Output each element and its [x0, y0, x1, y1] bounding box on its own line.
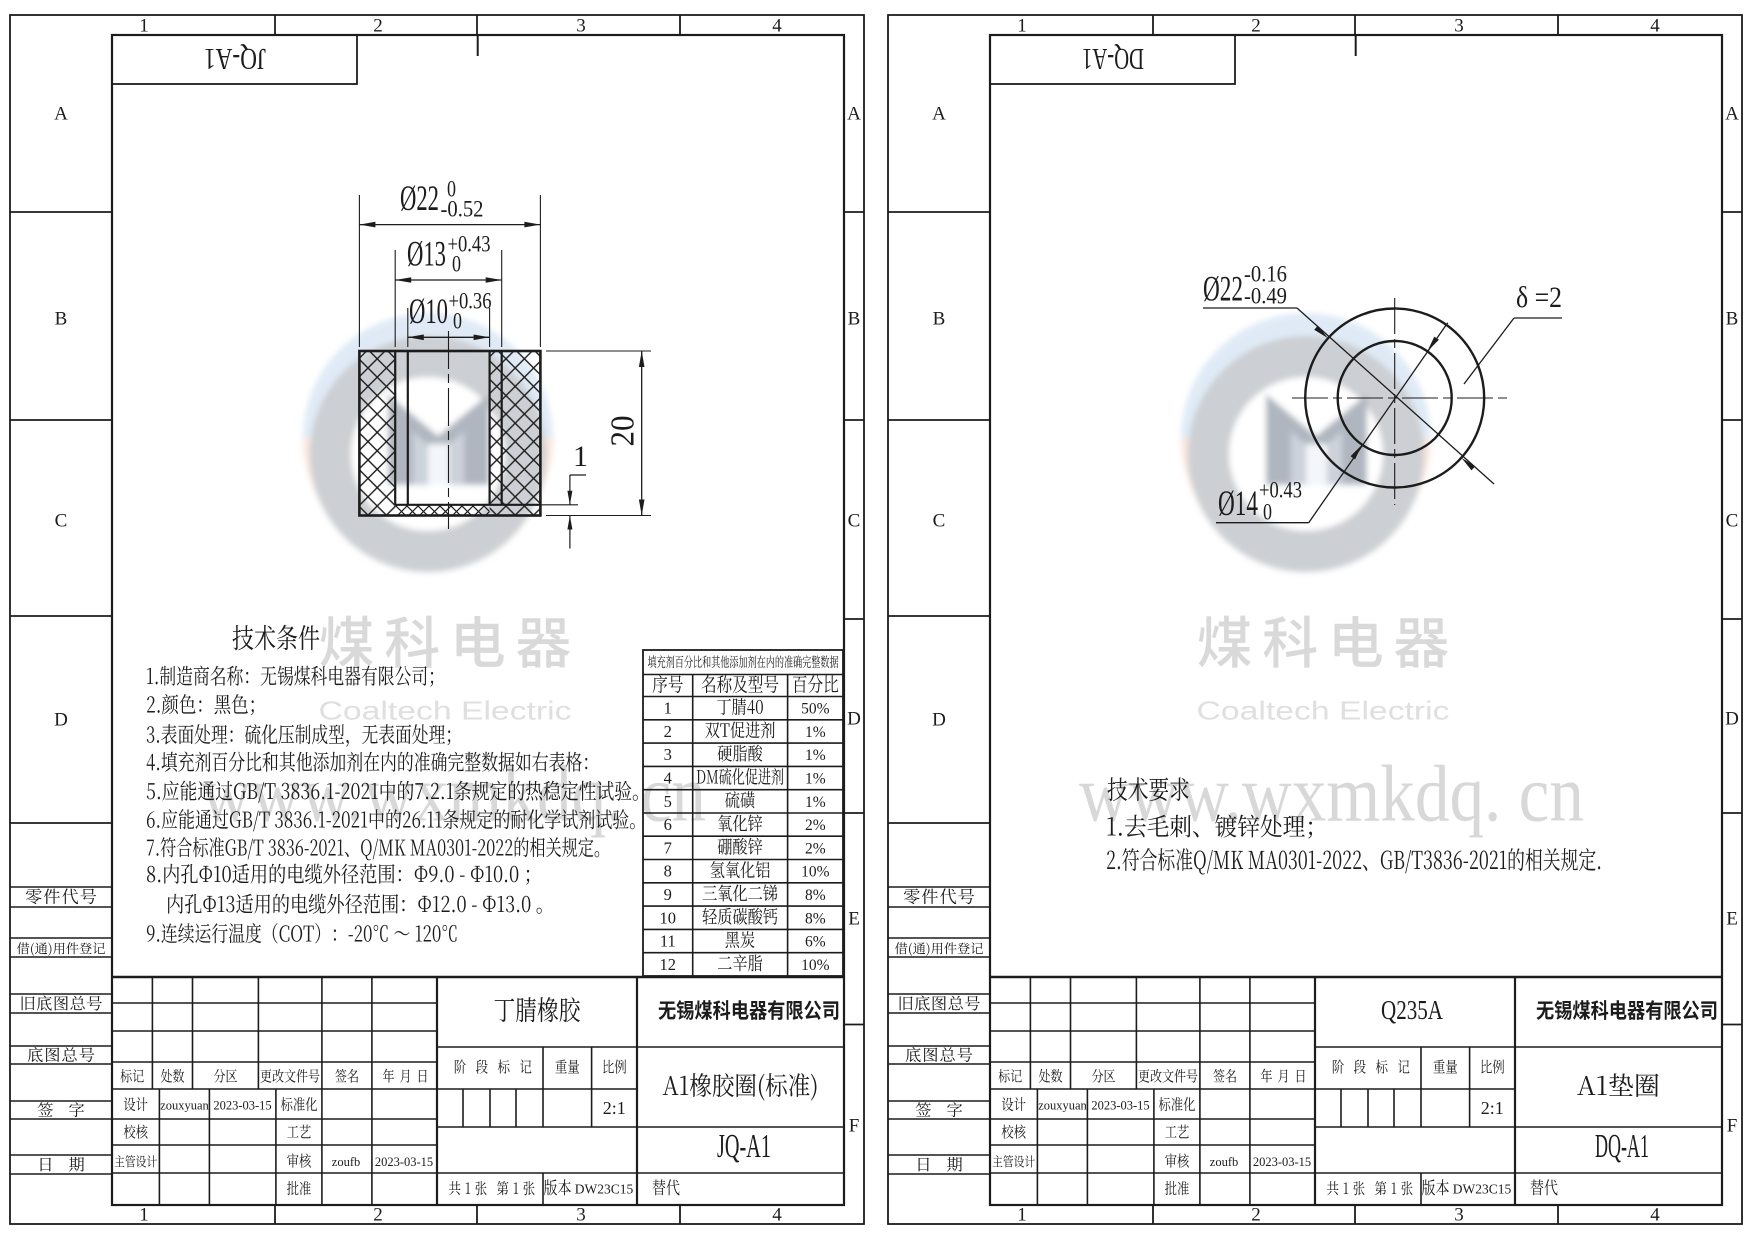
svg-text:JQ-A1: JQ-A1 [204, 42, 266, 77]
svg-text:DW23C15: DW23C15 [1453, 1182, 1512, 1197]
svg-text:Coaltech Electric: Coaltech Electric [319, 696, 572, 726]
svg-text:1: 1 [139, 16, 149, 37]
svg-text:2023-03-15: 2023-03-15 [375, 1155, 433, 1169]
svg-text:A: A [932, 104, 946, 125]
svg-text:20: 20 [605, 416, 642, 447]
svg-text:3: 3 [576, 16, 586, 37]
svg-text:4: 4 [772, 1205, 782, 1226]
svg-text:0: 0 [1263, 500, 1272, 525]
svg-text:3: 3 [1454, 16, 1464, 37]
svg-text:4: 4 [772, 16, 782, 37]
svg-text:2: 2 [664, 722, 672, 741]
svg-text:1: 1 [139, 1205, 149, 1226]
svg-text:B: B [933, 309, 946, 330]
svg-text:2023-03-15: 2023-03-15 [213, 1099, 271, 1113]
svg-text:12: 12 [660, 955, 677, 974]
svg-text:3: 3 [664, 745, 672, 764]
svg-text:1%: 1% [805, 771, 826, 788]
svg-text:1: 1 [573, 440, 588, 473]
svg-text:2%: 2% [805, 817, 826, 834]
svg-text:D: D [932, 710, 946, 731]
svg-text:1: 1 [1017, 16, 1027, 37]
svg-text:2:1: 2:1 [1481, 1098, 1504, 1118]
svg-text:δ =2: δ =2 [1516, 281, 1562, 314]
svg-text:A: A [847, 104, 861, 125]
svg-text:E: E [848, 909, 860, 930]
svg-text:C: C [1726, 511, 1739, 532]
svg-text:Ø10: Ø10 [409, 291, 448, 331]
svg-text:1%: 1% [805, 794, 826, 811]
svg-text:0: 0 [452, 252, 461, 277]
svg-text:zouxyuan: zouxyuan [1038, 1099, 1087, 1113]
svg-text:zoufb: zoufb [1210, 1155, 1238, 1169]
svg-text:50%: 50% [801, 701, 830, 718]
svg-text:4: 4 [1650, 16, 1660, 37]
svg-text:JQ-A1: JQ-A1 [717, 1128, 771, 1165]
svg-text:2: 2 [1251, 1205, 1261, 1226]
svg-text:4: 4 [664, 769, 672, 788]
svg-text:10%: 10% [801, 957, 830, 974]
svg-text:A: A [54, 104, 68, 125]
svg-text:2:1: 2:1 [603, 1098, 626, 1118]
svg-text:2023-03-15: 2023-03-15 [1253, 1155, 1311, 1169]
svg-text:Ø22: Ø22 [400, 178, 439, 218]
svg-text:Q235A: Q235A [1381, 995, 1443, 1025]
svg-text:-0.49: -0.49 [1244, 284, 1287, 309]
svg-text:3: 3 [1454, 1205, 1464, 1226]
svg-text:zouxyuan: zouxyuan [160, 1099, 209, 1113]
svg-text:4: 4 [1650, 1205, 1660, 1226]
svg-text:F: F [1727, 1116, 1738, 1137]
svg-text:C: C [933, 511, 946, 532]
svg-text:DW23C15: DW23C15 [575, 1182, 634, 1197]
svg-text:6%: 6% [805, 934, 826, 951]
svg-text:2: 2 [373, 1205, 383, 1226]
svg-text:D: D [847, 709, 861, 730]
svg-text:11: 11 [660, 932, 676, 951]
svg-text:F: F [849, 1116, 860, 1137]
svg-text:Coaltech Electric: Coaltech Electric [1197, 696, 1450, 726]
svg-text:1%: 1% [805, 724, 826, 741]
svg-text:2: 2 [1251, 16, 1261, 37]
svg-text:B: B [1726, 309, 1739, 330]
svg-text:Ø14: Ø14 [1218, 483, 1258, 523]
svg-text:A: A [1725, 104, 1739, 125]
svg-text:8%: 8% [805, 910, 826, 927]
svg-text:D: D [1725, 709, 1739, 730]
svg-text:B: B [848, 309, 861, 330]
svg-text:10: 10 [660, 908, 677, 927]
svg-text:8: 8 [664, 862, 672, 881]
svg-text:E: E [1726, 909, 1738, 930]
svg-text:1: 1 [1017, 1205, 1027, 1226]
svg-text:-0.52: -0.52 [441, 196, 484, 221]
svg-text:C: C [848, 511, 861, 532]
svg-text:3: 3 [576, 1205, 586, 1226]
svg-text:2: 2 [373, 16, 383, 37]
svg-text:5: 5 [664, 792, 672, 811]
svg-text:DQ-A1: DQ-A1 [1082, 42, 1144, 77]
svg-text:10%: 10% [801, 864, 830, 881]
svg-text:D: D [54, 710, 68, 731]
svg-text:2023-03-15: 2023-03-15 [1091, 1099, 1149, 1113]
svg-text:9: 9 [664, 885, 672, 904]
svg-text:1: 1 [664, 699, 672, 718]
svg-text:Ø13: Ø13 [407, 234, 446, 274]
svg-text:1%: 1% [805, 747, 826, 764]
svg-text:0: 0 [453, 309, 462, 334]
svg-text:2%: 2% [805, 840, 826, 857]
svg-text:B: B [55, 309, 68, 330]
svg-text:zoufb: zoufb [332, 1155, 360, 1169]
svg-text:8%: 8% [805, 887, 826, 904]
svg-text:6: 6 [664, 815, 672, 834]
svg-text:DQ-A1: DQ-A1 [1595, 1128, 1649, 1165]
svg-text:7: 7 [664, 838, 672, 857]
svg-text:Ø22: Ø22 [1203, 269, 1243, 309]
svg-text:C: C [55, 511, 68, 532]
